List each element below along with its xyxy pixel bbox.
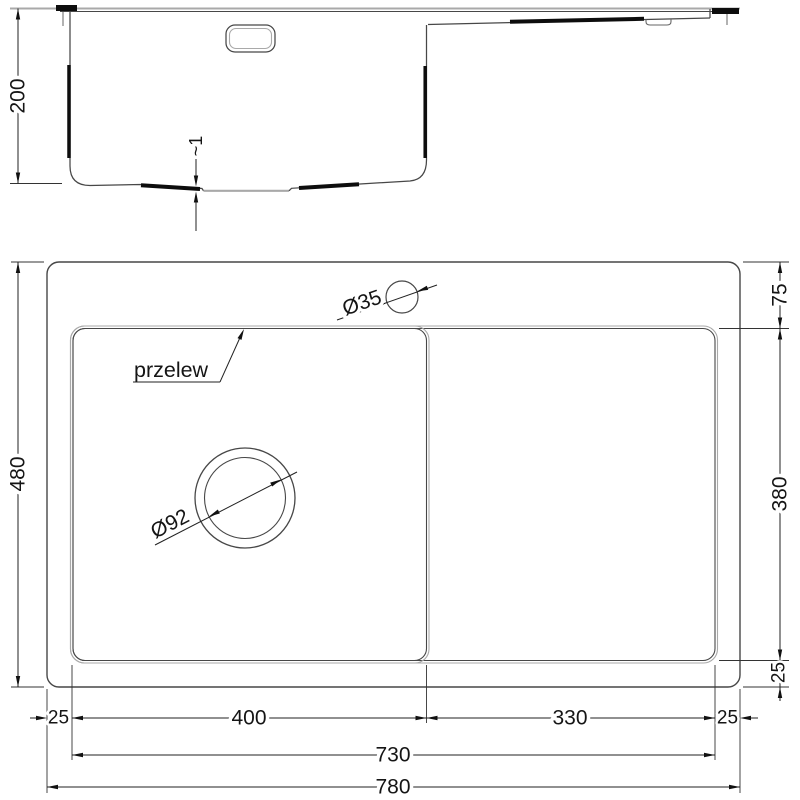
arrowhead-down — [778, 650, 782, 661]
drainer-surface-thick — [510, 19, 644, 22]
overflow-label: przelew — [134, 358, 209, 382]
arrowhead-left — [740, 716, 751, 720]
arrowhead-down — [16, 676, 20, 687]
dim-text-400: 400 — [231, 707, 266, 730]
dim-text-380: 380 — [769, 476, 792, 511]
dim-text-330: 330 — [552, 707, 587, 730]
dimension-recess-1: ~1 — [186, 136, 206, 231]
arrowhead-left — [72, 753, 83, 757]
arrowhead-left — [72, 716, 83, 720]
dim-text-25-right-rim: 25 — [717, 708, 738, 729]
arrowhead-right — [704, 753, 715, 757]
arrowhead-up — [194, 192, 198, 203]
side-view: 200 ~1 — [7, 8, 741, 231]
bowl-bottom-right-thick — [299, 184, 359, 188]
arrowhead-left — [47, 785, 58, 789]
overflow-hole-inner — [230, 29, 272, 49]
arrowhead-right — [704, 716, 715, 720]
dimension-overall-height-480: 480 — [7, 262, 45, 687]
arrowhead-right — [416, 716, 427, 720]
bowl-bottom-right-slope — [289, 25, 427, 191]
arrowhead-down — [194, 176, 198, 187]
arrowhead-up — [16, 9, 20, 20]
bowl-left-wall — [70, 12, 90, 186]
arrowhead-right — [729, 785, 740, 789]
arrowhead-up — [778, 262, 782, 273]
technical-drawing-sheet: 200 ~1 Ø35 — [0, 0, 800, 800]
dimension-depth-200: 200 — [7, 9, 63, 184]
dim-text-75: 75 — [769, 283, 792, 306]
dim-text-25-left-rim: 25 — [48, 708, 69, 729]
dim-text-200: 200 — [7, 78, 30, 113]
dim-text-25-bottom-rim: 25 — [769, 662, 790, 683]
dim-text-480: 480 — [7, 456, 30, 491]
top-view: Ø35 Ø92 przelew 480 — [7, 262, 792, 799]
arrowhead-down — [16, 173, 20, 184]
arrowhead-right — [36, 716, 47, 720]
dim-text-recess: ~1 — [186, 136, 206, 157]
sink-technical-drawing: 200 ~1 Ø35 — [0, 0, 800, 800]
bowl-bottom-left-thick — [141, 185, 200, 189]
arrowhead-up — [778, 687, 782, 698]
dim-text-730: 730 — [375, 744, 410, 767]
arrowhead-down — [778, 318, 782, 329]
dim-text-780: 780 — [375, 776, 410, 799]
arrowhead-up — [778, 329, 782, 340]
arrowhead-left — [427, 716, 438, 720]
arrowhead-up — [16, 262, 20, 273]
